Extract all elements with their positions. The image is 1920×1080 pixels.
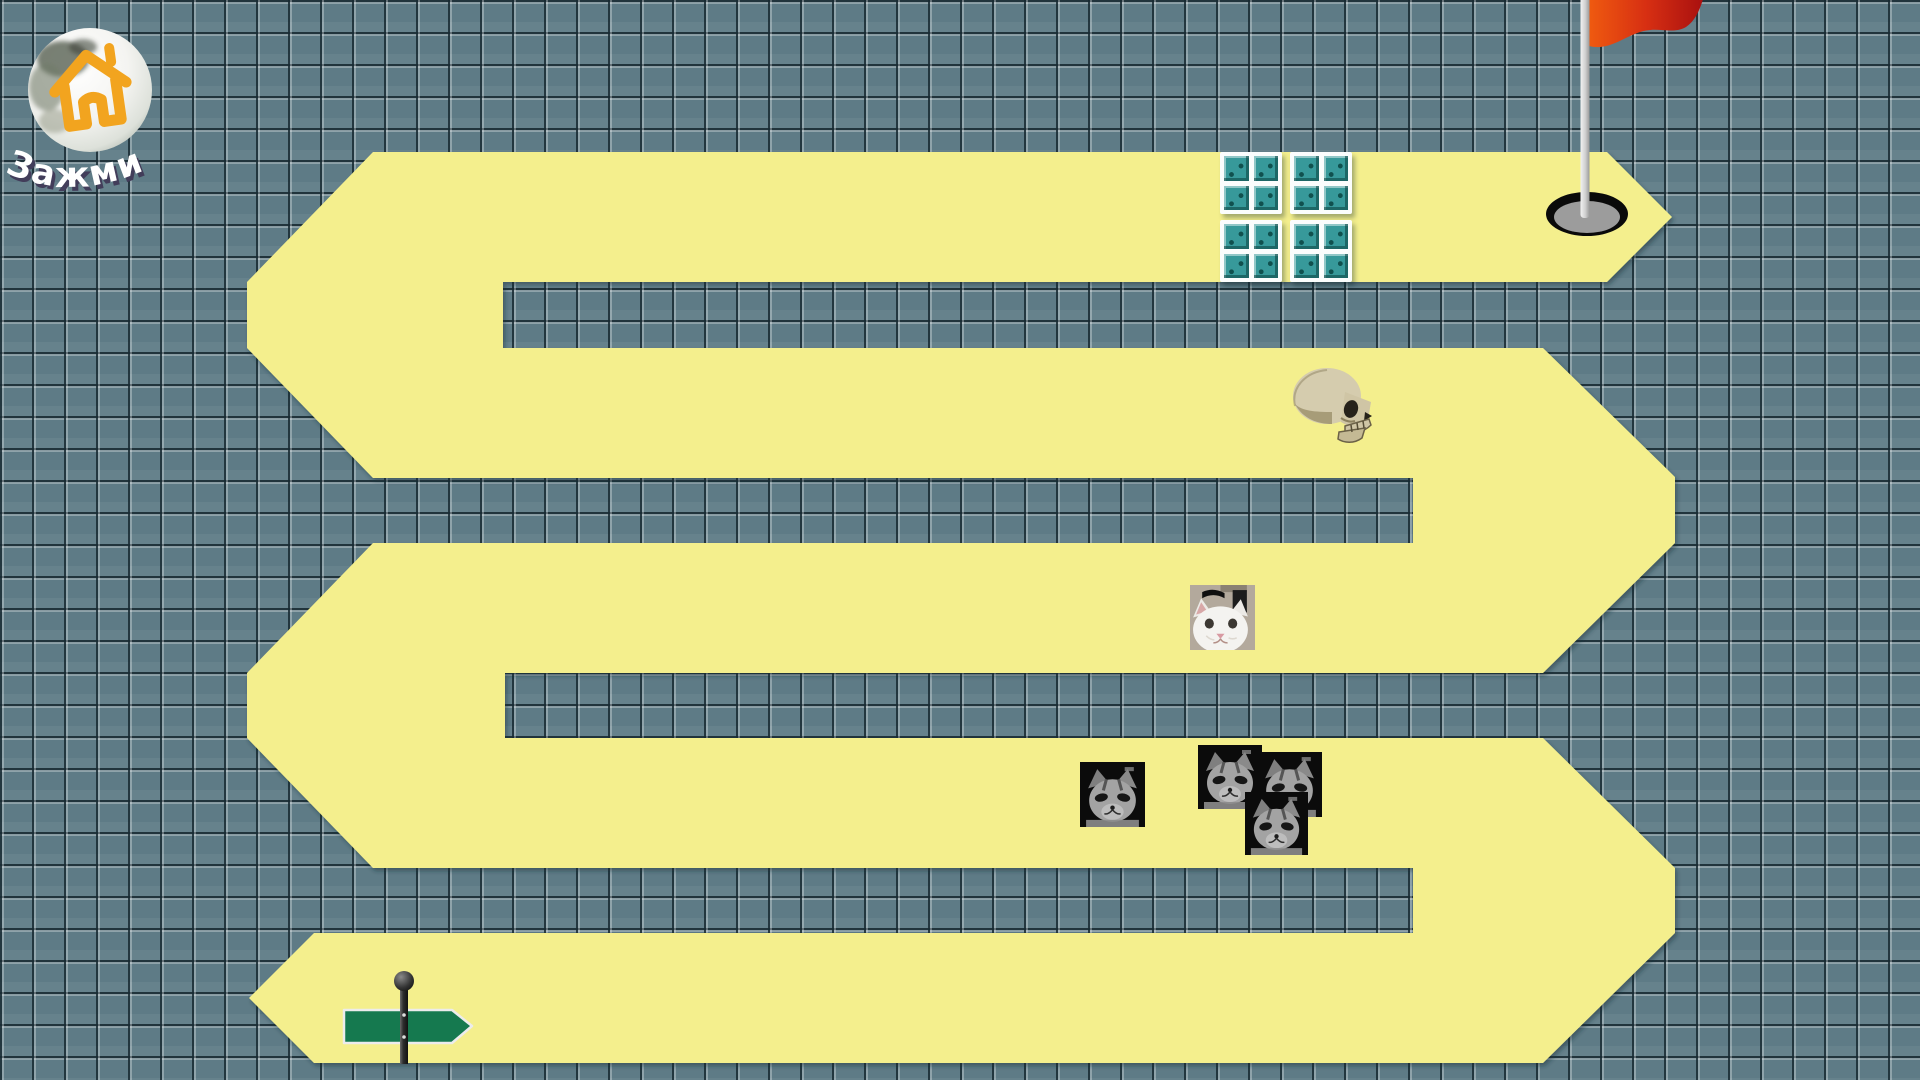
white-cat-obstacle [1190, 585, 1255, 650]
course-layer[interactable] [0, 0, 1920, 1080]
ice-block [1220, 152, 1282, 214]
signpost-icon [340, 968, 490, 1068]
start-signpost [340, 968, 490, 1068]
ice-cell [1224, 186, 1249, 211]
ice-block [1290, 152, 1352, 214]
ice-cell [1294, 156, 1319, 181]
ice-cell [1294, 254, 1319, 279]
ice-cell [1294, 186, 1319, 211]
white-cat-icon [1190, 585, 1255, 650]
game-stage: Зажми Зажми [0, 0, 1920, 1080]
course-path[interactable] [247, 152, 1675, 1063]
ice-cell [1324, 186, 1349, 211]
flag-cloth [1589, 0, 1704, 47]
ice-cell [1324, 254, 1349, 279]
home-button[interactable]: Зажми Зажми [0, 0, 190, 210]
ice-cell [1254, 224, 1279, 249]
gray-cat-obstacle [1245, 792, 1308, 855]
ice-block [1220, 220, 1282, 282]
flag-pole [1581, 0, 1590, 218]
home-button-label: Зажми Зажми [0, 128, 180, 204]
gray-cat-icon [1245, 792, 1308, 855]
gray-cat-icon [1080, 762, 1145, 827]
ice-cell [1254, 254, 1279, 279]
ice-cell [1224, 224, 1249, 249]
skull-icon [1285, 362, 1381, 458]
ice-cell [1324, 224, 1349, 249]
ice-block [1290, 220, 1352, 282]
skull-obstacle [1285, 362, 1381, 458]
ice-cell [1224, 254, 1249, 279]
gray-cat-obstacle [1080, 762, 1145, 827]
ice-cell [1254, 186, 1279, 211]
ice-cell [1254, 156, 1279, 181]
ice-cell [1224, 156, 1249, 181]
ice-cell [1294, 224, 1319, 249]
ice-cell [1324, 156, 1349, 181]
